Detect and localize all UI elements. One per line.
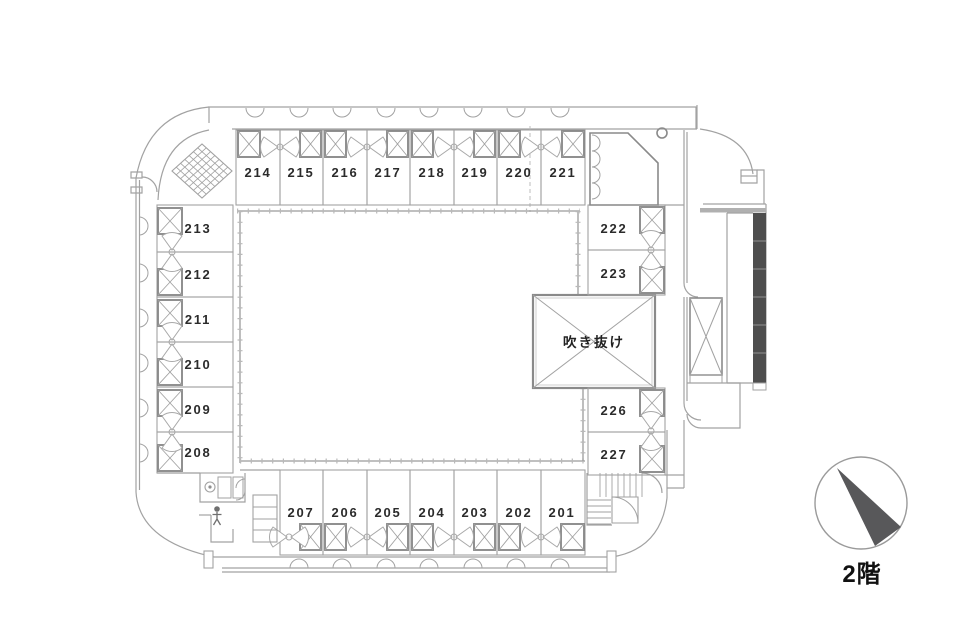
floor-plan-svg: 2142152162172182192202212132122112102092…: [0, 0, 965, 644]
door-swing-arc: [377, 559, 395, 568]
door-swing-arc: [464, 108, 482, 117]
shaft-cap: [753, 383, 766, 390]
door-swing-arc: [551, 108, 569, 117]
door-swing-arc: [464, 559, 482, 568]
floor-label: 2階: [842, 561, 881, 588]
wall-segment: [211, 515, 233, 542]
door-swing-arc: [236, 479, 245, 488]
corridor-bar: [700, 208, 766, 213]
room-label-208: 208: [184, 445, 211, 460]
room-label-211: 211: [185, 312, 211, 327]
room-label-221: 221: [549, 165, 576, 180]
room-label-213: 213: [184, 221, 211, 236]
stair-tread: [198, 167, 228, 194]
closet-door-arc: [592, 167, 600, 183]
shaft-hatch: [753, 213, 766, 383]
person-icon: [213, 506, 222, 525]
room-label-216: 216: [331, 165, 358, 180]
door-swing-arc: [551, 559, 569, 568]
door-swing-arc: [139, 444, 148, 462]
walls-layer: [131, 105, 766, 572]
wall-segment: [642, 473, 662, 493]
balcony-pillar: [607, 551, 616, 572]
wall-segment: [757, 170, 764, 204]
closet-door-arc: [592, 135, 600, 151]
wall-segment: [209, 107, 696, 129]
floor-plan-page: 2142152162172182192202212132122112102092…: [0, 0, 965, 644]
wall-segment: [684, 403, 701, 420]
wall-segment: [612, 498, 667, 557]
wall-segment: [684, 283, 698, 297]
wall-segment: [700, 129, 753, 174]
door-swing-arc: [139, 354, 148, 372]
room-label-217: 217: [374, 165, 401, 180]
wall-segment: [687, 383, 740, 428]
closet-door-arc: [592, 183, 600, 199]
door-swing-arc: [139, 309, 148, 327]
room-label-206: 206: [331, 505, 358, 520]
door-swing-arc: [333, 559, 351, 568]
door-swing-arc: [290, 559, 308, 568]
balcony-pillar: [204, 551, 213, 568]
toilet-icon-center: [208, 485, 211, 488]
stair-landing-arc: [612, 497, 638, 523]
door-swing-arc: [377, 108, 395, 117]
wc-fixture: [218, 477, 231, 498]
room-label-210: 210: [184, 357, 211, 372]
room-label-203: 203: [461, 505, 488, 520]
room-label-201: 201: [548, 505, 575, 520]
room-label-223: 223: [600, 266, 627, 281]
room-label-227: 227: [600, 447, 627, 462]
room-label-202: 202: [505, 505, 532, 520]
door-swing-arc: [139, 217, 148, 235]
door-swing-arc: [246, 108, 264, 117]
room-label-209: 209: [184, 402, 211, 417]
bathroom-fixture-icon: [641, 411, 661, 450]
room-label-219: 219: [461, 165, 488, 180]
door-swing-arc: [139, 399, 148, 417]
wall-segment: [142, 177, 157, 192]
wall-segment: [587, 473, 612, 525]
wall-segment: [687, 414, 701, 428]
north-arrow-compass: 2階: [815, 457, 907, 588]
door-swing-arc: [333, 108, 351, 117]
room-label-222: 222: [600, 221, 627, 236]
door-swing-arc: [420, 108, 438, 117]
closet-door-arc: [592, 151, 600, 167]
elevator-pit: [690, 375, 722, 383]
door-swing-arc: [507, 559, 525, 568]
room-label-226: 226: [600, 403, 627, 418]
atrium-label: 吹き抜け: [563, 334, 625, 350]
room-label-215: 215: [287, 165, 314, 180]
door-swing-arc: [420, 559, 438, 568]
room-label-218: 218: [418, 165, 445, 180]
door-swing-arc: [290, 108, 308, 117]
door-swing-arc: [236, 491, 245, 500]
room-label-204: 204: [418, 505, 445, 520]
door-swing-arc: [139, 264, 148, 282]
room-label-212: 212: [184, 267, 211, 282]
door-swing-arc: [507, 108, 525, 117]
room-label-205: 205: [374, 505, 401, 520]
room-label-220: 220: [505, 165, 532, 180]
atrium-void: 吹き抜け: [563, 334, 625, 350]
wall-segment: [136, 107, 209, 178]
room-label-214: 214: [244, 165, 271, 180]
room-label-207: 207: [287, 505, 314, 520]
